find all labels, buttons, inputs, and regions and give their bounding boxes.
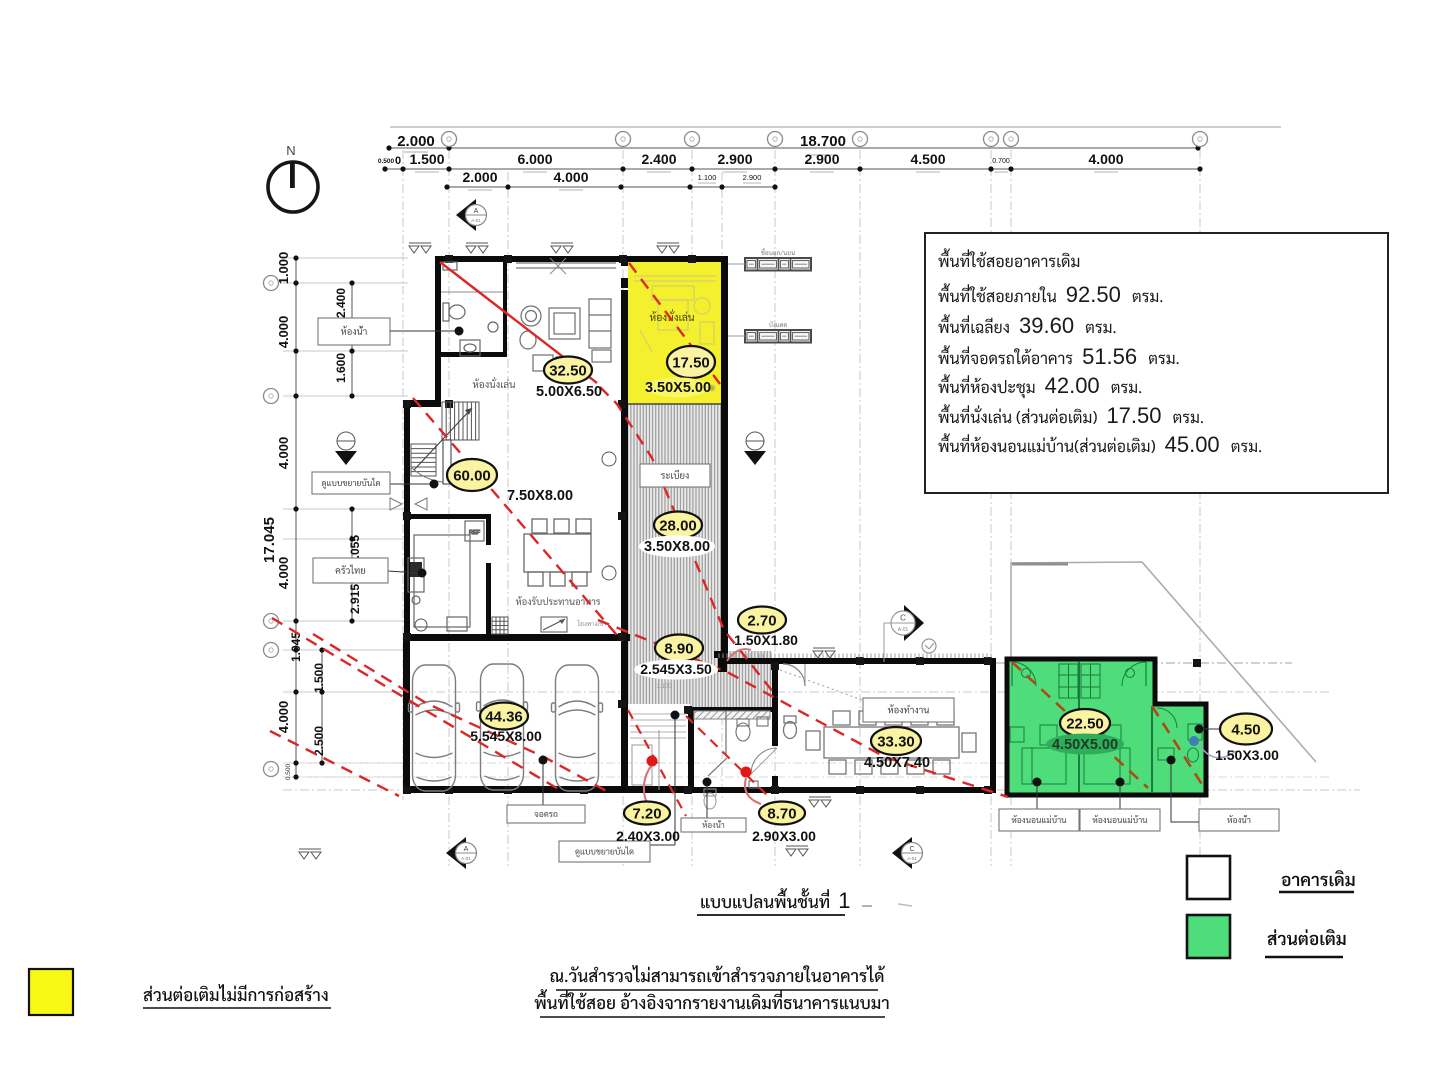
svg-text:0.700: 0.700: [992, 158, 1010, 165]
svg-text:60.00: 60.00: [453, 467, 491, 484]
svg-text:3.50X5.00: 3.50X5.00: [645, 380, 711, 396]
svg-text:A: A: [474, 208, 479, 215]
svg-text:4.50X5.00: 4.50X5.00: [1052, 737, 1118, 753]
svg-text:2.900: 2.900: [804, 151, 839, 167]
svg-text:REF: REF: [469, 530, 481, 536]
svg-text:0.500: 0.500: [285, 763, 292, 780]
svg-text:A-01: A-01: [907, 856, 917, 861]
svg-text:1.045: 1.045: [289, 632, 303, 662]
svg-text:45.00: 45.00: [1165, 432, 1220, 457]
svg-text:32.50: 32.50: [549, 362, 587, 379]
svg-text:4.50: 4.50: [1231, 721, 1260, 738]
svg-text:8.70: 8.70: [767, 805, 796, 822]
svg-text:A: A: [464, 846, 469, 853]
svg-text:2.000: 2.000: [397, 133, 435, 150]
svg-text:2.70: 2.70: [747, 612, 776, 629]
svg-text:6.000: 6.000: [517, 151, 552, 167]
svg-text:1.600: 1.600: [334, 353, 348, 383]
svg-text:1.50X3.00: 1.50X3.00: [1215, 747, 1279, 763]
svg-text:2.40X3.00: 2.40X3.00: [616, 828, 680, 844]
svg-text:22.50: 22.50: [1066, 715, 1104, 732]
svg-text:2.915: 2.915: [348, 584, 362, 614]
svg-text:39.60: 39.60: [1019, 313, 1074, 338]
svg-text:51.56: 51.56: [1082, 344, 1137, 369]
svg-text:2.400: 2.400: [641, 151, 676, 167]
svg-text:2.400: 2.400: [334, 288, 348, 318]
svg-text:4.000: 4.000: [553, 169, 588, 185]
svg-text:8.90: 8.90: [664, 640, 693, 657]
svg-text:0.500: 0.500: [378, 158, 395, 165]
svg-text:5.00X6.50: 5.00X6.50: [536, 384, 602, 400]
svg-text:4.500: 4.500: [910, 151, 945, 167]
svg-text:44.36: 44.36: [485, 708, 523, 725]
svg-text:4.000: 4.000: [276, 557, 291, 590]
svg-text:33.30: 33.30: [877, 733, 915, 750]
svg-text:4.000: 4.000: [276, 701, 291, 734]
svg-text:2.545X3.50: 2.545X3.50: [640, 661, 712, 677]
svg-text:42.00: 42.00: [1045, 373, 1100, 398]
svg-text:1.500: 1.500: [312, 663, 326, 693]
svg-text:7.20: 7.20: [632, 805, 661, 822]
svg-text:2.900: 2.900: [743, 173, 762, 182]
svg-text:4.000: 4.000: [276, 437, 291, 470]
svg-text:1.50X1.80: 1.50X1.80: [734, 632, 798, 648]
svg-text:7.50X8.00: 7.50X8.00: [507, 488, 573, 504]
svg-text:A-01: A-01: [461, 856, 471, 861]
svg-text:A-01: A-01: [898, 627, 909, 633]
svg-text:1: 1: [838, 888, 850, 913]
svg-text:5.545X8.00: 5.545X8.00: [470, 728, 542, 744]
svg-text:17.045: 17.045: [261, 517, 278, 563]
svg-text:1.100: 1.100: [656, 684, 672, 690]
svg-text:2.900: 2.900: [717, 151, 752, 167]
svg-text:0: 0: [395, 155, 401, 167]
svg-text:C: C: [900, 614, 906, 623]
svg-text:2.90X3.00: 2.90X3.00: [752, 828, 816, 844]
svg-text:3.50X8.00: 3.50X8.00: [644, 539, 710, 555]
svg-text:28.00: 28.00: [659, 517, 697, 534]
svg-text:C: C: [909, 846, 914, 853]
svg-text:N: N: [286, 143, 295, 158]
svg-text:17.50: 17.50: [1106, 403, 1161, 428]
svg-text:4.50X7.40: 4.50X7.40: [864, 755, 930, 771]
svg-text:18.700: 18.700: [800, 133, 846, 150]
svg-text:1.100: 1.100: [698, 173, 717, 182]
svg-text:17.50: 17.50: [672, 354, 710, 371]
svg-text:1.500: 1.500: [409, 151, 444, 167]
svg-text:2.000: 2.000: [462, 169, 497, 185]
svg-text:A-01: A-01: [471, 218, 481, 223]
svg-text:4.000: 4.000: [276, 316, 291, 349]
svg-text:92.50: 92.50: [1066, 282, 1121, 307]
svg-text:2.500: 2.500: [312, 726, 326, 756]
svg-text:4.000: 4.000: [1088, 151, 1123, 167]
